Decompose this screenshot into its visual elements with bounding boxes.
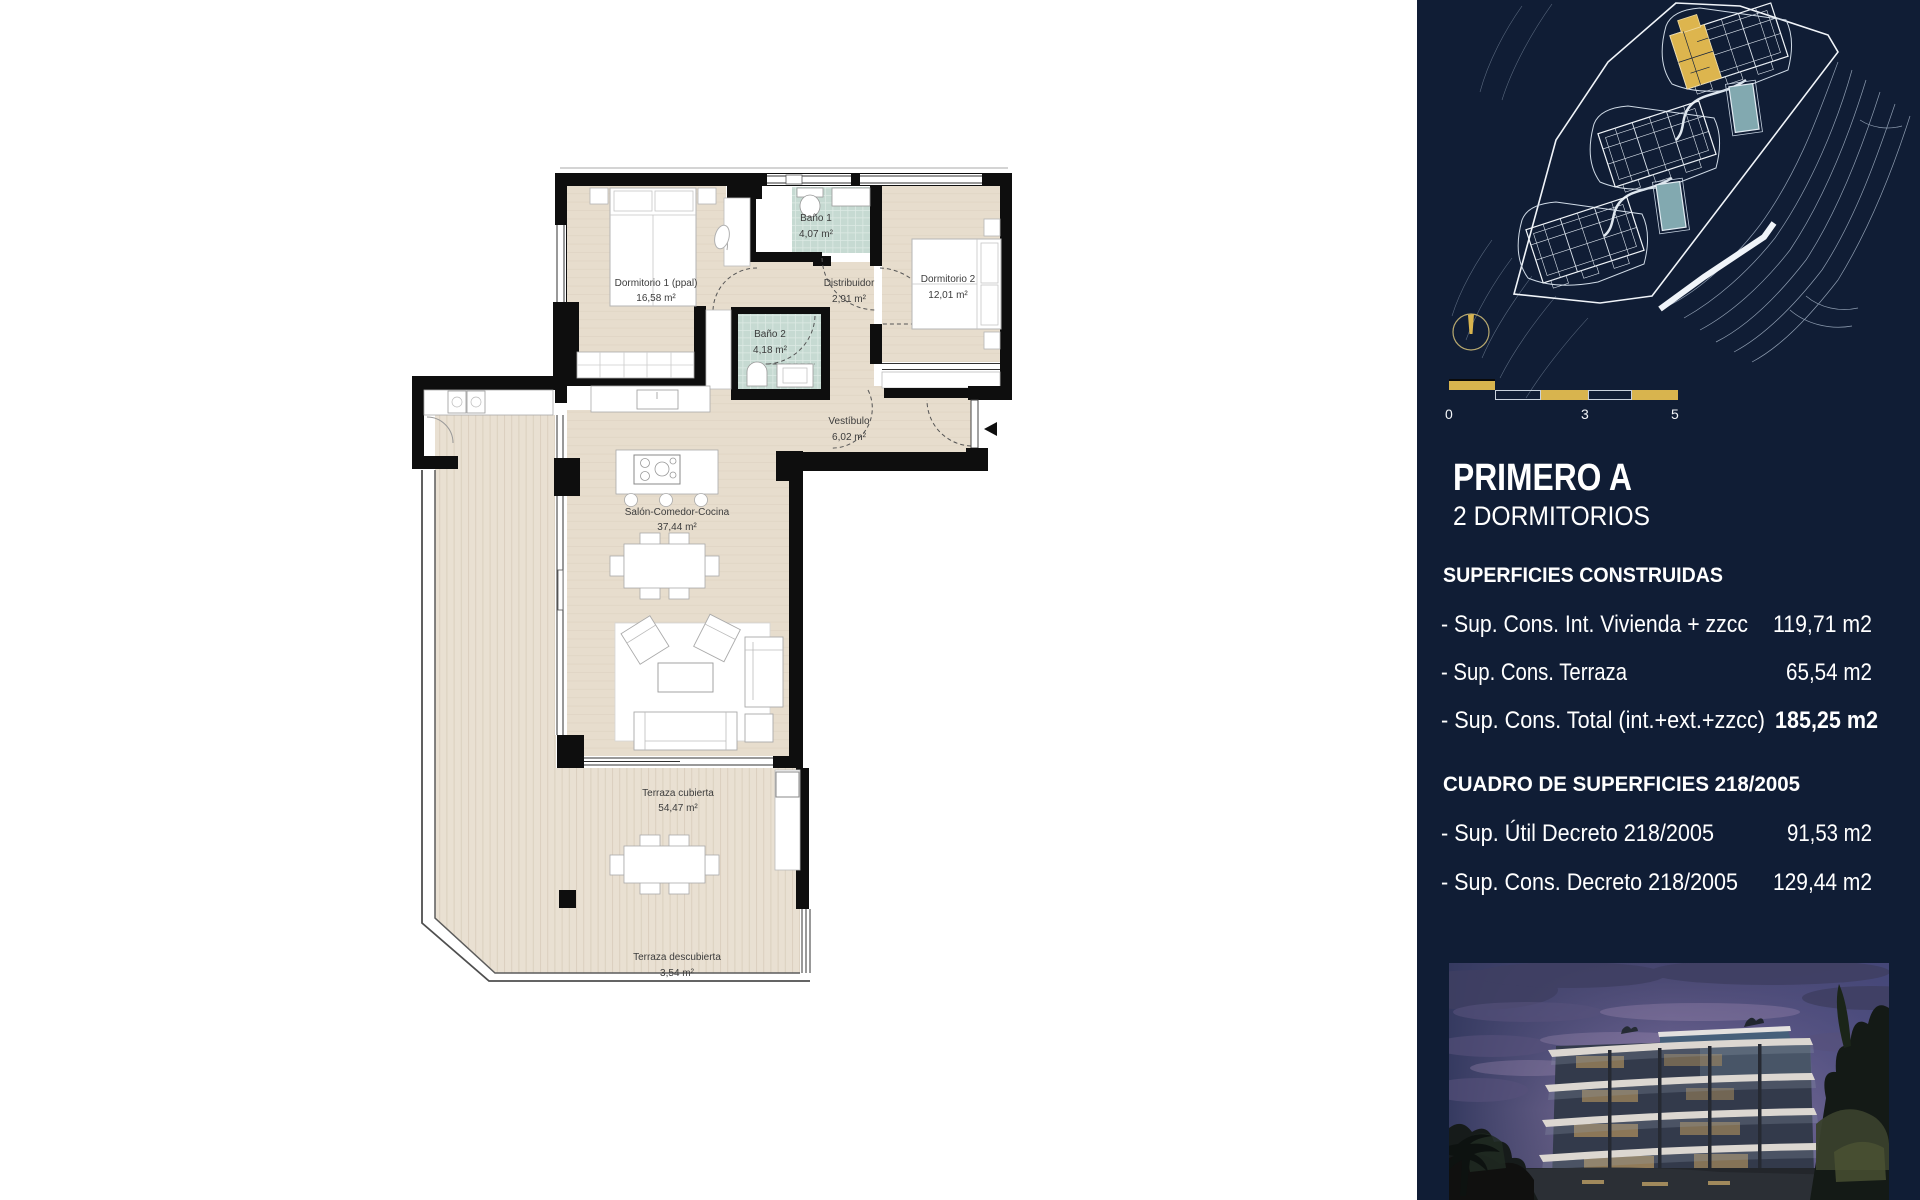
svg-text:- Sup. Cons. Decreto 218/2005: - Sup. Cons. Decreto 218/2005 [1441, 869, 1738, 896]
svg-text:0: 0 [1445, 406, 1453, 422]
svg-text:37,44 m²: 37,44 m² [657, 522, 697, 533]
svg-text:119,71 m2: 119,71 m2 [1773, 611, 1872, 638]
svg-text:CUADRO DE SUPERFICIES 218/2005: CUADRO DE SUPERFICIES 218/2005 [1443, 773, 1800, 796]
svg-text:12,01 m²: 12,01 m² [928, 290, 968, 301]
svg-text:65,54 m2: 65,54 m2 [1786, 659, 1872, 686]
svg-text:4,18 m²: 4,18 m² [753, 345, 788, 356]
svg-text:5: 5 [1671, 406, 1679, 422]
svg-text:Salón-Comedor-Cocina: Salón-Comedor-Cocina [625, 507, 730, 518]
svg-text:Terraza cubierta: Terraza cubierta [642, 788, 714, 799]
svg-text:185,25 m2: 185,25 m2 [1775, 707, 1878, 734]
svg-text:6,02 m²: 6,02 m² [832, 432, 867, 443]
svg-text:2,91 m²: 2,91 m² [832, 294, 867, 305]
svg-text:- Sup. Cons. Int. Vivienda + z: - Sup. Cons. Int. Vivienda + zzcc [1441, 611, 1748, 638]
svg-text:Baño 1: Baño 1 [800, 213, 832, 224]
svg-text:Baño 2: Baño 2 [754, 329, 786, 340]
svg-text:- Sup. Cons. Terraza: - Sup. Cons. Terraza [1441, 659, 1628, 686]
svg-text:Dormitorio 2: Dormitorio 2 [921, 274, 976, 285]
svg-text:2 DORMITORIOS: 2 DORMITORIOS [1453, 501, 1650, 531]
svg-text:16,58 m²: 16,58 m² [636, 293, 676, 304]
svg-text:3: 3 [1581, 406, 1589, 422]
svg-text:91,53 m2: 91,53 m2 [1787, 820, 1872, 847]
svg-text:54,47 m²: 54,47 m² [658, 803, 698, 814]
svg-text:Distribuidor: Distribuidor [824, 278, 875, 289]
svg-text:Dormitorio 1 (ppal): Dormitorio 1 (ppal) [615, 278, 698, 289]
svg-text:129,44 m2: 129,44 m2 [1773, 869, 1872, 896]
svg-text:SUPERFICIES CONSTRUIDAS: SUPERFICIES CONSTRUIDAS [1443, 564, 1723, 587]
svg-text:- Sup. Útil Decreto 218/2005: - Sup. Útil Decreto 218/2005 [1441, 820, 1714, 847]
svg-text:3,54 m²: 3,54 m² [660, 968, 695, 979]
svg-text:Terraza descubierta: Terraza descubierta [633, 952, 721, 963]
svg-text:- Sup. Cons. Total (int.+ext.+: - Sup. Cons. Total (int.+ext.+zzcc) [1441, 707, 1765, 734]
svg-text:4,07 m²: 4,07 m² [799, 229, 834, 240]
svg-text:Vestíbulo: Vestíbulo [828, 416, 870, 427]
svg-text:PRIMERO A: PRIMERO A [1453, 457, 1632, 499]
